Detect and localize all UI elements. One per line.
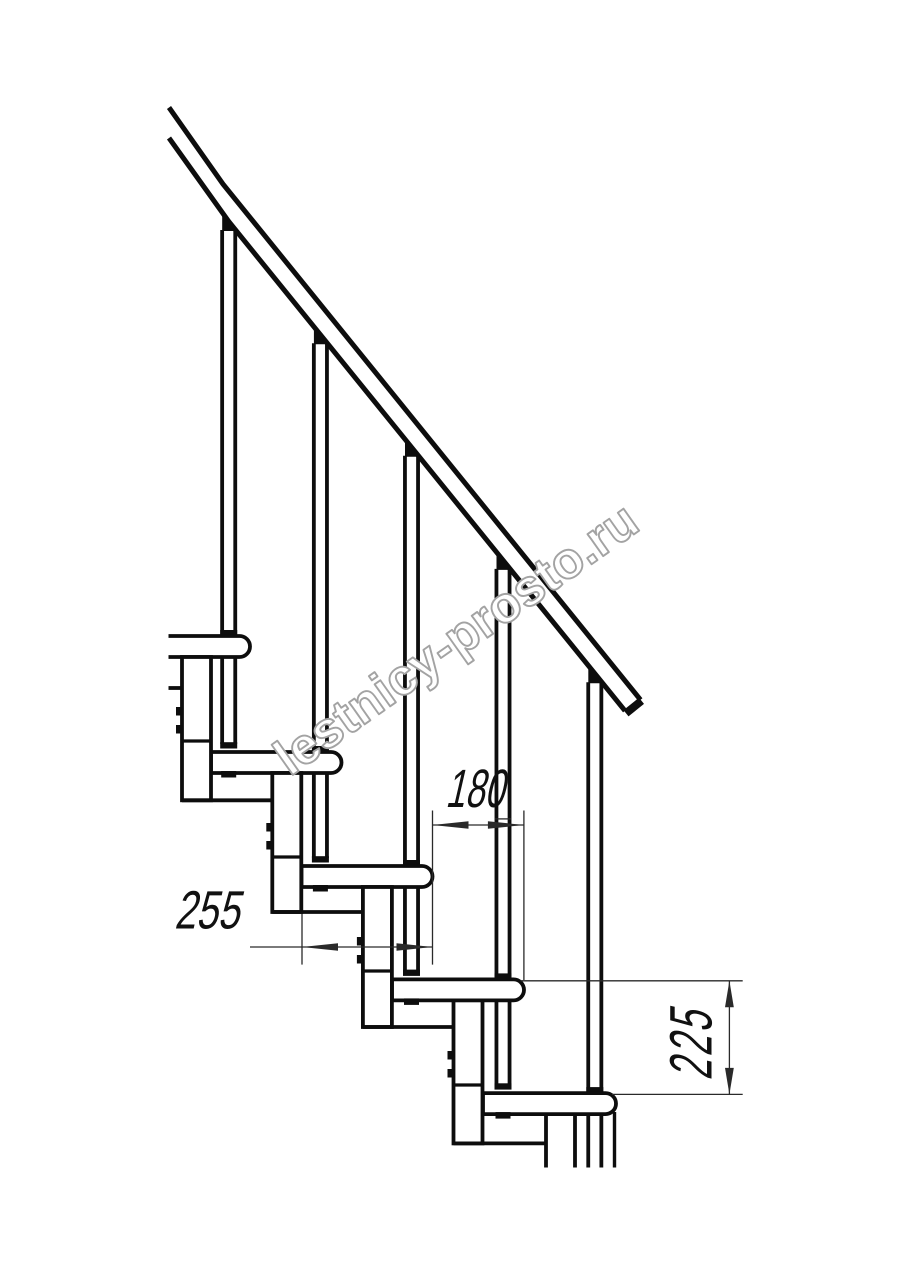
svg-text:255: 255 <box>171 881 250 941</box>
svg-text:180: 180 <box>442 758 515 819</box>
svg-text:225: 225 <box>657 997 724 1084</box>
